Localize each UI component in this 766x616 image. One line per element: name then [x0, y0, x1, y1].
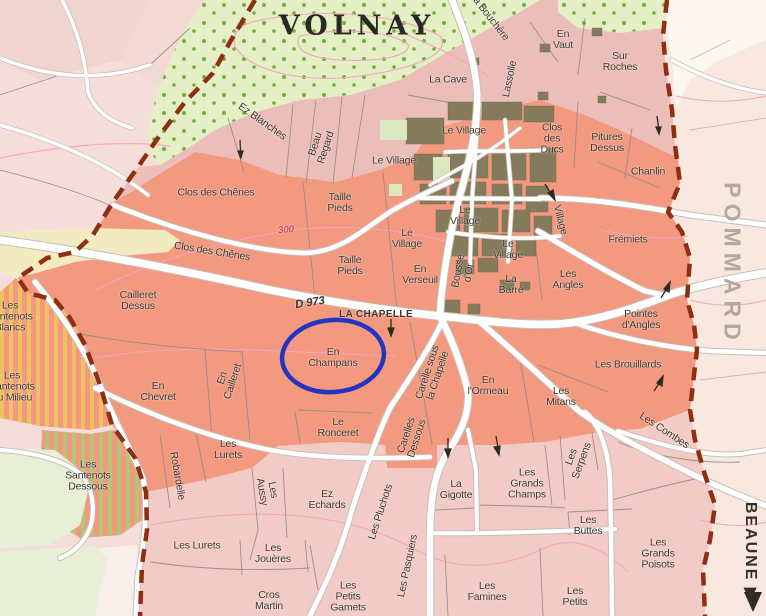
label-le-village-w: Le Village	[392, 228, 422, 250]
label-les-angles: Les Angles	[553, 269, 584, 291]
label-les-brouillards: Les Brouillards	[595, 359, 661, 370]
label-clos-des-chenes-1: Clos des Chênes	[178, 187, 255, 198]
label-bousse-dor: Bousse d'Or	[450, 253, 478, 290]
label-en-vaut: En Vaut	[553, 29, 573, 51]
label-en-verseuil: En Verseuil	[402, 264, 438, 286]
label-fremiets: Frémiets	[608, 234, 647, 245]
label-clos-des-chenes-2: Clos des Chênes	[173, 241, 251, 264]
label-en-champans: En Champans	[308, 347, 357, 369]
label-les-mitans: Les Mitans	[546, 386, 576, 408]
label-en-cailleret: En Cailleret	[212, 359, 244, 401]
label-chanlin: Chanlin	[631, 166, 665, 177]
label-santenots-dessous: Les Santenots Dessous	[65, 459, 111, 492]
label-les-famines: Les Famines	[468, 581, 507, 603]
label-les-grands-poisots: Les Grands Poisots	[641, 537, 674, 570]
label-le-village-e: Le Village	[493, 239, 523, 261]
label-pitures-dessus: Pitures Dessus	[590, 132, 624, 154]
label-d973: D 973	[294, 295, 325, 312]
label-la-gigotte: La Gigotte	[440, 479, 472, 501]
label-les-pasquiers: Les Pasquiers	[396, 534, 420, 599]
label-santenots-blancs: Les Santenots Blancs	[0, 300, 33, 333]
label-les-combes: Les Combes	[637, 411, 691, 451]
region-title-volnay: VOLNAY	[279, 11, 436, 42]
label-village-rot: Village	[551, 204, 569, 236]
label-le-village-c: Le Village	[450, 205, 480, 227]
label-robardelle: Robardelle	[167, 451, 186, 501]
label-le-village-nw: Le Village	[372, 155, 416, 166]
map-labels: Ez BlanchesBeau RegardLe VillageLa CaveL…	[0, 0, 766, 616]
label-taille-pieds-1: Taille Pieds	[327, 192, 352, 214]
label-santenots-milieu: Les Santenots du Milieu	[0, 370, 35, 403]
label-les-aussy: Les Aussy	[254, 475, 280, 506]
label-les-lurets-1: Les Lurets	[214, 439, 242, 461]
label-lassolle: Lassolle	[501, 60, 519, 98]
label-clos-des-ducs: Clos des Ducs	[540, 122, 563, 155]
label-la-barre: La Barre	[499, 274, 524, 296]
label-cailleret-dessus: Cailleret Dessus	[120, 290, 157, 312]
label-en-chevret: En Chevret	[140, 381, 175, 403]
volnay-vineyard-map: Ez BlanchesBeau RegardLe VillageLa CaveL…	[0, 0, 766, 616]
label-les-petits-gamets: Les Petits Gamets	[330, 580, 366, 613]
label-les-lurets-2: Les Lurets	[173, 540, 220, 551]
label-cros-martin: Cros Martin	[255, 590, 283, 612]
label-taille-pieds-2: Taille Pieds	[337, 255, 362, 277]
label-les-buttes: Les Buttes	[574, 515, 603, 537]
label-la-cave: La Cave	[429, 74, 467, 85]
label-le-ronceret: Le Ronceret	[317, 417, 358, 439]
label-les-petits: Les Petits	[562, 586, 587, 608]
label-les-joueres: Les Jouères	[255, 543, 291, 565]
label-contour-300: 300	[278, 225, 295, 237]
label-pointes-dangles: Pointes d'Angles	[622, 309, 660, 331]
label-sur-roches: Sur Roches	[603, 51, 637, 73]
label-la-bouchere: La Bouchère	[467, 0, 511, 43]
neighbor-label-pommard: POMMARD	[719, 182, 746, 345]
label-ez-blanches: Ez Blanches	[236, 101, 288, 142]
label-carelles-dessous: Carelles Dessous	[395, 415, 428, 459]
label-ez-echards: Ez Echards	[308, 489, 345, 511]
label-en-lormeau: En l'Ormeau	[468, 375, 509, 397]
label-la-chapelle: LA CHAPELLE	[339, 310, 413, 321]
label-les-serpens: Les Serpens	[560, 438, 594, 481]
neighbor-label-beaune: BEAUNE ▶	[741, 502, 761, 602]
label-les-grands-champs: Les Grands Champs	[508, 467, 546, 500]
label-beau-regard: Beau Regard	[305, 127, 336, 165]
label-carelle-sous: Carelle sous la Chapelle	[414, 344, 452, 404]
label-les-pluchots: Les Pluchots	[367, 483, 395, 541]
label-le-village-top: Le Village	[442, 125, 486, 136]
